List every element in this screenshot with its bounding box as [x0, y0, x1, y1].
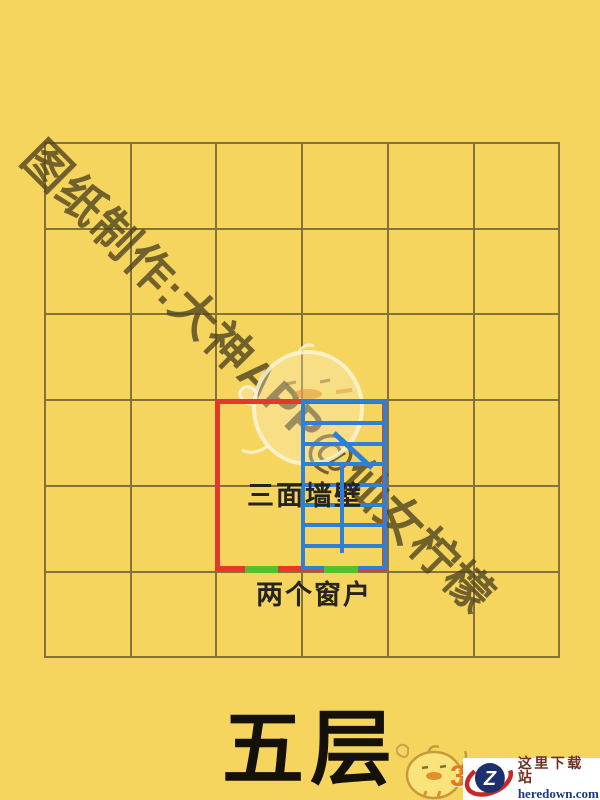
stair-rung: [305, 544, 383, 548]
site-name: 这里下载站: [518, 758, 600, 787]
stair-rung: [305, 421, 383, 425]
site-logo-plate: Z 这里下载站 heredown.com: [463, 758, 600, 800]
stair-divider: [340, 462, 344, 553]
grid-line-h: [44, 656, 560, 658]
floor-title: 五层: [222, 682, 398, 800]
walls-label: 三面墙壁: [247, 474, 363, 513]
stair-rung: [305, 462, 383, 466]
stair-rung: [305, 442, 383, 446]
window-marker: [245, 566, 278, 573]
windows-label: 两个窗户: [256, 573, 372, 612]
blueprint-canvas: 图纸制作:大神APP@仙女柠檬 三面墙壁 两个窗户 五层 3: [0, 0, 600, 800]
grid-line-h: [44, 142, 560, 144]
stair-rung: [305, 523, 383, 527]
logo-letter: Z: [483, 768, 497, 790]
window-marker: [324, 566, 358, 573]
site-logo-icon: Z: [463, 758, 515, 800]
site-domain: heredown.com: [518, 787, 600, 800]
grid-line-h: [44, 313, 560, 315]
